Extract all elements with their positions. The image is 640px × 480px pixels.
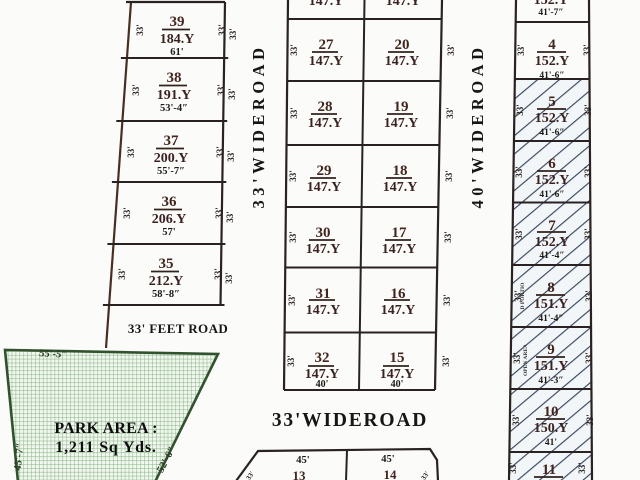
svg-text:152.Y: 152.Y <box>535 111 570 126</box>
svg-text:57': 57' <box>162 227 176 238</box>
svg-text:33': 33' <box>213 268 223 280</box>
svg-text:33': 33' <box>508 462 518 474</box>
svg-text:61': 61' <box>170 47 184 58</box>
svg-text:150.Y: 150.Y <box>534 421 569 436</box>
svg-text:11: 11 <box>542 462 556 478</box>
svg-text:6: 6 <box>548 156 556 172</box>
svg-text:1,211 Sq Yds.: 1,211 Sq Yds. <box>55 439 156 456</box>
svg-text:147.Y: 147.Y <box>385 54 420 69</box>
svg-text:27: 27 <box>319 37 335 53</box>
svg-text:147.Y: 147.Y <box>382 242 417 257</box>
svg-text:20: 20 <box>395 37 410 53</box>
svg-text:PARK AREA :: PARK AREA : <box>54 420 157 437</box>
svg-text:17: 17 <box>392 225 408 241</box>
svg-text:19: 19 <box>394 99 409 115</box>
svg-text:33': 33' <box>442 294 452 306</box>
svg-text:33': 33' <box>585 414 595 426</box>
svg-text:32: 32 <box>315 350 330 366</box>
svg-text:33': 33' <box>289 107 299 119</box>
svg-text:33': 33' <box>215 146 225 158</box>
svg-text:212.Y: 212.Y <box>149 274 184 289</box>
svg-text:33' FEET ROAD: 33' FEET ROAD <box>128 321 228 336</box>
svg-text:33': 33' <box>122 207 132 219</box>
svg-text:OPEN AREA: OPEN AREA <box>523 344 529 376</box>
svg-text:41'-6″: 41'-6″ <box>539 128 564 138</box>
svg-text:147.Y: 147.Y <box>307 180 342 195</box>
svg-text:33': 33' <box>511 414 521 426</box>
svg-text:33': 33' <box>444 170 454 182</box>
svg-text:206.Y: 206.Y <box>152 212 187 227</box>
svg-text:33': 33' <box>577 462 587 474</box>
svg-text:8: 8 <box>547 280 555 296</box>
svg-text:D PORTIO: D PORTIO <box>520 282 526 310</box>
svg-text:147.Y: 147.Y <box>383 180 418 195</box>
svg-text:147.Y: 147.Y <box>381 303 416 318</box>
svg-text:33': 33' <box>117 268 127 280</box>
svg-text:33': 33' <box>224 272 234 284</box>
svg-text:30: 30 <box>316 225 331 241</box>
svg-text:33': 33' <box>583 228 593 240</box>
svg-text:14: 14 <box>384 467 398 480</box>
svg-text:33': 33' <box>217 24 227 36</box>
svg-text:33': 33' <box>516 44 526 56</box>
svg-text:33': 33' <box>226 150 236 162</box>
svg-text:40'WIDEROAD: 40'WIDEROAD <box>468 43 487 208</box>
svg-text:152.Y: 152.Y <box>535 235 570 250</box>
svg-text:33': 33' <box>443 231 453 243</box>
svg-text:55'-5″: 55'-5″ <box>39 348 68 361</box>
svg-text:33': 33' <box>225 211 235 223</box>
svg-text:41'-6″: 41'-6″ <box>539 190 564 200</box>
svg-text:147.Y: 147.Y <box>384 116 419 131</box>
svg-text:33': 33' <box>445 107 455 119</box>
svg-text:41'-4″: 41'-4″ <box>539 251 564 261</box>
svg-text:33': 33' <box>288 231 298 243</box>
svg-text:147.Y: 147.Y <box>306 303 341 318</box>
svg-text:10: 10 <box>544 404 559 420</box>
svg-text:191.Y: 191.Y <box>157 88 192 103</box>
svg-text:152.Y: 152.Y <box>535 54 570 69</box>
svg-text:33': 33' <box>135 24 145 36</box>
svg-text:33': 33' <box>228 28 238 40</box>
svg-text:40': 40' <box>391 379 404 390</box>
svg-text:33'WIDEROAD: 33'WIDEROAD <box>272 410 428 431</box>
svg-text:184.Y: 184.Y <box>160 32 195 47</box>
svg-text:13: 13 <box>293 468 307 480</box>
svg-text:40': 40' <box>316 379 329 390</box>
svg-text:152.Y: 152.Y <box>534 0 569 8</box>
svg-text:41'-7″: 41'-7″ <box>538 8 563 18</box>
svg-text:33': 33' <box>514 228 524 240</box>
svg-text:33': 33' <box>583 166 593 178</box>
svg-text:29: 29 <box>317 163 332 179</box>
svg-text:151.Y: 151.Y <box>534 359 569 374</box>
svg-text:33': 33' <box>227 88 237 100</box>
svg-text:147.Y: 147.Y <box>306 242 341 257</box>
svg-text:15: 15 <box>390 350 405 366</box>
svg-text:18: 18 <box>393 163 408 179</box>
svg-text:55'-7″: 55'-7″ <box>157 166 185 177</box>
svg-text:41': 41' <box>545 438 557 448</box>
svg-text:151.Y: 151.Y <box>534 297 569 312</box>
svg-text:147.Y: 147.Y <box>308 116 343 131</box>
svg-text:45': 45' <box>296 455 310 466</box>
svg-text:41'-4″: 41'-4″ <box>538 314 563 324</box>
svg-text:33': 33' <box>287 294 297 306</box>
svg-text:41'-3″: 41'-3″ <box>538 376 563 386</box>
svg-text:58'-8″: 58'-8″ <box>152 289 180 300</box>
svg-text:33': 33' <box>514 166 524 178</box>
svg-text:33': 33' <box>441 355 451 367</box>
svg-text:37: 37 <box>164 133 180 149</box>
svg-text:33': 33' <box>582 44 592 56</box>
svg-text:5: 5 <box>548 94 556 110</box>
svg-text:33': 33' <box>515 104 525 116</box>
svg-text:28: 28 <box>318 99 333 115</box>
svg-text:33'WIDEROAD: 33'WIDEROAD <box>249 43 268 208</box>
svg-text:33': 33' <box>286 355 296 367</box>
svg-text:147.Y: 147.Y <box>309 54 344 69</box>
svg-text:33': 33' <box>288 170 298 182</box>
svg-text:41'-6″: 41'-6″ <box>539 71 564 81</box>
svg-text:200.Y: 200.Y <box>154 151 189 166</box>
svg-text:36: 36 <box>162 194 178 210</box>
svg-text:33': 33' <box>126 146 136 158</box>
svg-text:35: 35 <box>159 256 174 272</box>
svg-text:39: 39 <box>170 14 185 30</box>
svg-text:33': 33' <box>216 84 226 96</box>
svg-text:33': 33' <box>446 44 456 56</box>
svg-text:33': 33' <box>584 290 594 302</box>
svg-text:45': 45' <box>381 454 395 465</box>
svg-text:38: 38 <box>167 70 182 86</box>
svg-text:33': 33' <box>131 84 141 96</box>
svg-text:9: 9 <box>547 342 555 358</box>
svg-text:53'-4″: 53'-4″ <box>160 103 188 114</box>
svg-text:147.Y: 147.Y <box>386 0 421 9</box>
svg-text:33': 33' <box>512 352 522 364</box>
svg-text:33': 33' <box>214 207 224 219</box>
svg-text:33': 33' <box>583 104 593 116</box>
svg-text:152.Y: 152.Y <box>535 173 570 188</box>
svg-text:33': 33' <box>289 44 299 56</box>
svg-text:33': 33' <box>584 352 594 364</box>
svg-text:4: 4 <box>548 37 556 53</box>
svg-text:147.Y: 147.Y <box>309 0 344 9</box>
